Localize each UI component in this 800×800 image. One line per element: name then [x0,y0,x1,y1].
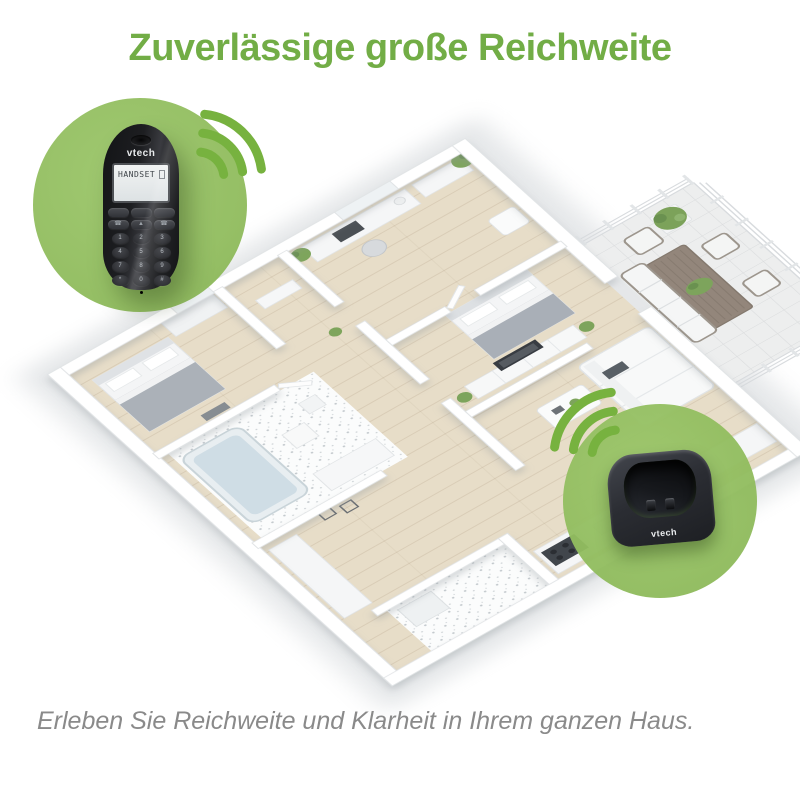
battery-icon [159,170,165,179]
key-4: 4 [112,247,129,258]
key-0: 0 [133,275,150,286]
handset-nav-keys: ☎▲☎ [103,208,179,229]
key-3: 3 [154,233,171,244]
caption: Erleben Sie Reichweite und Klarheit in I… [37,707,694,736]
key-☎: ☎ [154,220,175,229]
key-7: 7 [112,261,129,272]
cordless-handset: vtech HANDSET ☎▲☎ 123456789*0# [103,124,179,290]
key-#: # [154,275,171,286]
key-1: 1 [112,233,129,244]
key-blank [154,208,175,217]
handset-keypad: 123456789*0# [103,233,179,286]
headline: Zuverlässige große Reichweite [0,27,800,70]
key-5: 5 [133,247,150,258]
base-brand-logo: vtech [612,523,716,542]
key-*: * [112,275,129,286]
microphone-hole [140,291,143,294]
marketing-image: Zuverlässige große Reichweite [0,0,800,800]
earpiece-speaker [131,135,151,145]
key-2: 2 [133,233,150,244]
key-6: 6 [154,247,171,258]
key-blank [131,208,152,217]
display-text: HANDSET [118,170,155,179]
charging-cradle [622,458,699,520]
key-9: 9 [154,261,171,272]
signal-waves-handset-icon [188,90,286,188]
signal-waves-base-icon [534,370,630,466]
key-8: 8 [133,261,150,272]
charging-contact [646,500,656,512]
handset-brand-logo: vtech [103,148,179,159]
key-blank [108,208,129,217]
key-▲: ▲ [131,220,152,229]
key-☎: ☎ [108,220,129,229]
handset-display: HANDSET [112,163,170,203]
charging-contact [665,498,675,510]
